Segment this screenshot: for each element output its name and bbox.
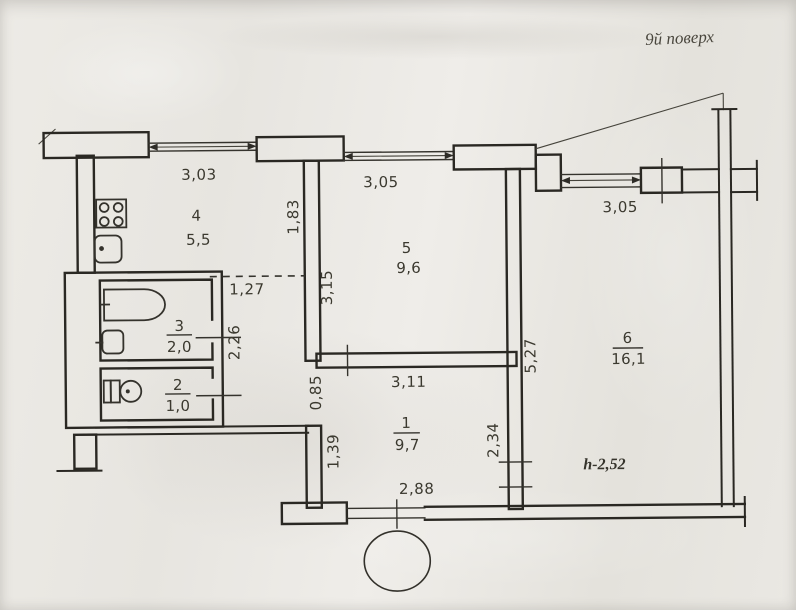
dim-room1-left-wall: 1,39: [324, 434, 342, 470]
room-area: 2,0: [167, 338, 192, 356]
kitchen-passage-dashed: [210, 276, 305, 277]
window-glazing: [149, 150, 257, 151]
toilet-icon: [104, 380, 142, 402]
bathroom-block-wall: [65, 272, 223, 428]
room-number: 2: [173, 376, 183, 394]
exterior-wall: [77, 156, 95, 273]
room-area: 9,7: [395, 436, 420, 454]
dim-kitchen-window: 3,03: [181, 166, 217, 184]
room-area: 5,5: [186, 231, 211, 249]
window-glazing: [344, 152, 454, 153]
dimension-line: [155, 146, 251, 147]
balcony-line: [535, 93, 723, 149]
room-number: 1: [401, 414, 411, 432]
floor-caption: 9й поверх: [645, 27, 715, 49]
dim-kitchen-right-wall: 1,83: [284, 199, 302, 235]
dim-nook-opening: 0,85: [307, 375, 325, 411]
dimension-arrow: [344, 153, 353, 160]
dimension-arrow: [445, 152, 454, 159]
dim-room5-window: 3,05: [363, 173, 399, 191]
dimension-arrow: [149, 144, 158, 151]
dimension-arrow: [632, 176, 641, 183]
room-number: 3: [174, 317, 184, 335]
dim-room5-left-wall: 3,15: [318, 270, 336, 306]
room-label-1: 1 9,7: [394, 414, 420, 454]
wall-stub: [74, 435, 96, 469]
wall-block: [257, 136, 344, 161]
party-wall: [718, 110, 721, 506]
corner-tick: [38, 129, 55, 144]
dim-room1-top: 3,11: [391, 373, 427, 391]
stove-icon: [96, 199, 126, 227]
window-glazing: [561, 187, 641, 188]
entry-threshold: [347, 518, 425, 519]
room5-room6-wall: [506, 169, 523, 509]
wall-block: [44, 132, 149, 158]
dim-room6-window: 3,05: [602, 198, 638, 216]
ceiling-height-label: h-2,52: [583, 456, 625, 473]
dimension-line: [350, 156, 448, 157]
dim-entry-width: 2,88: [399, 480, 435, 498]
boundary-wall: [96, 433, 308, 435]
room-area: 16,1: [611, 350, 646, 368]
wc-partition: [101, 368, 213, 421]
dimension-line: [567, 180, 635, 181]
scanned-floor-plan: 9й поверх: [0, 0, 796, 610]
dimension-arrow: [561, 177, 570, 184]
bottom-wall-block: [282, 502, 347, 524]
floor-plan-drawing: 9й поверх: [0, 0, 796, 610]
room-number: 5: [402, 239, 412, 257]
room-label-2: 2 1,0: [165, 376, 190, 415]
room-number: 6: [622, 329, 632, 347]
stamp-circle: [364, 531, 431, 592]
room-label-4: 4 5,5: [186, 207, 211, 249]
bottom-wall: [425, 517, 745, 520]
room1-left-wall: [306, 426, 322, 508]
boundary-wall: [96, 426, 308, 428]
kitchen-room5-wall: [304, 161, 321, 361]
window-glazing: [344, 160, 454, 161]
room5-room1-wall: [316, 352, 516, 368]
room-number: 4: [191, 207, 201, 225]
room-area: 9,6: [396, 259, 421, 277]
window-glazing: [561, 174, 641, 175]
room-area: 1,0: [165, 397, 190, 415]
entry-threshold: [347, 508, 425, 509]
dimension-arrow: [248, 143, 257, 150]
sink-icon: [94, 235, 121, 262]
dim-room6-left-wall: 5,27: [521, 338, 539, 374]
dim-bath-right-wall: 2,26: [225, 325, 243, 361]
bottom-wall: [425, 504, 745, 507]
dim-room1-right-wall: 2,34: [484, 422, 502, 458]
wall-step-block: [536, 155, 561, 191]
bathtub-icon: [100, 289, 165, 321]
room-label-6: 6 16,1: [611, 329, 646, 368]
wall-block: [454, 145, 536, 170]
window-glazing: [149, 142, 257, 143]
room-label-3: 3 2,0: [167, 317, 192, 356]
room-label-5: 5 9,6: [396, 239, 421, 277]
dim-kitchen-passage: 1,27: [229, 280, 265, 298]
